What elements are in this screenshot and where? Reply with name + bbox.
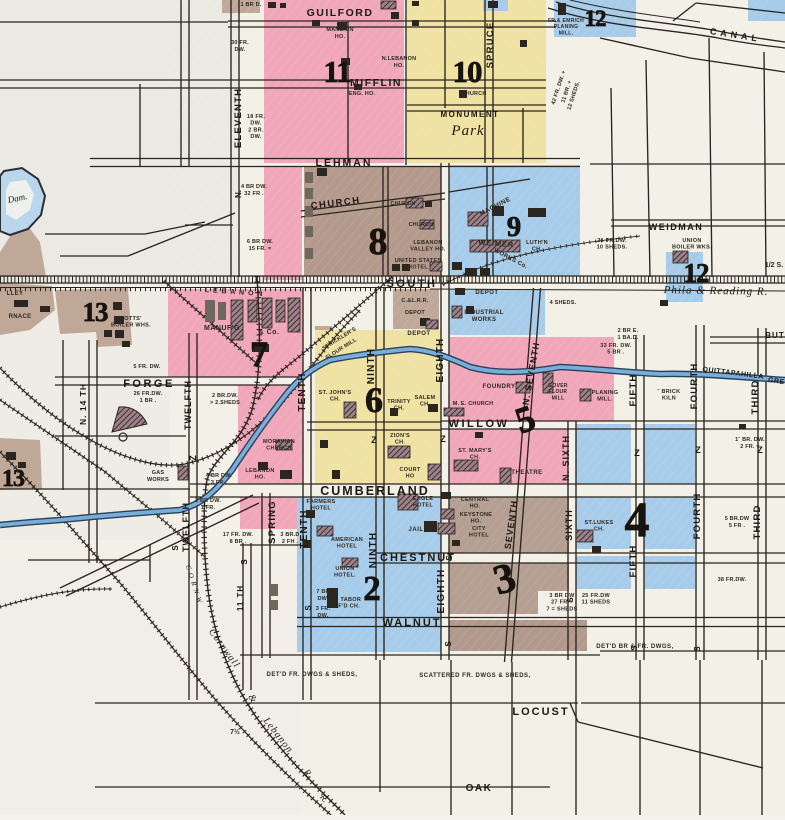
svg-text:ZION'S: ZION'S — [390, 433, 410, 439]
svg-text:C.&L.R.R.: C.&L.R.R. — [401, 298, 428, 304]
svg-text:HO.: HO. — [255, 475, 266, 481]
svg-text:18 FR.: 18 FR. — [247, 114, 265, 120]
svg-text:Z: Z — [188, 455, 198, 461]
svg-text:NINTH: NINTH — [366, 348, 377, 385]
svg-text:N.: N. — [234, 190, 243, 198]
svg-text:LEBANON: LEBANON — [413, 240, 442, 246]
svg-text:Z: Z — [371, 435, 377, 445]
svg-text:FLOUR: FLOUR — [549, 389, 568, 395]
svg-text:2 FH .: 2 FH . — [282, 539, 298, 545]
svg-text:2 BR DW.: 2 BR DW. — [195, 498, 221, 504]
svg-text:HO: HO — [406, 474, 415, 480]
svg-text:PLANING: PLANING — [554, 24, 579, 30]
svg-text:1 FR.: 1 FR. — [201, 505, 216, 511]
svg-text:CH.: CH. — [532, 247, 543, 253]
svg-text:1˝ BR. DW.: 1˝ BR. DW. — [735, 437, 765, 443]
svg-text:38 FR.DW.: 38 FR.DW. — [718, 577, 747, 583]
svg-text:TWELFTH: TWELFTH — [181, 502, 191, 552]
svg-text:9: 9 — [507, 211, 522, 243]
svg-text:6 BR DW.: 6 BR DW. — [247, 239, 273, 245]
svg-text:LEBANON: LEBANON — [245, 468, 274, 474]
svg-text:SOUTH: SOUTH — [387, 278, 438, 290]
svg-text:NINTH: NINTH — [368, 532, 379, 569]
svg-text:FR.& EMRICH: FR.& EMRICH — [548, 18, 584, 24]
svg-text:DEPOT: DEPOT — [407, 331, 430, 337]
svg-text:REF'D CH.: REF'D CH. — [330, 604, 360, 610]
svg-text:CH.: CH. — [394, 406, 405, 412]
svg-text:HOTEL.: HOTEL. — [334, 573, 356, 579]
svg-text:17 FR. DW.: 17 FR. DW. — [223, 532, 254, 538]
svg-text:HOTEL: HOTEL — [413, 503, 433, 509]
svg-text:LUTH'N: LUTH'N — [526, 240, 548, 246]
svg-text:5 BR.DW: 5 BR.DW — [725, 516, 750, 522]
svg-text:12: 12 — [684, 258, 710, 288]
svg-text:15 FR. =: 15 FR. = — [249, 246, 272, 252]
svg-text:RNACE: RNACE — [9, 314, 32, 320]
svg-text:DW.: DW. — [250, 134, 261, 140]
svg-text:THIRD: THIRD — [750, 379, 761, 414]
svg-text:DW.: DW. — [250, 121, 261, 127]
svg-text:25 FR.DW: 25 FR.DW — [582, 593, 611, 599]
svg-text:N. SIXTH: N. SIXTH — [561, 435, 571, 481]
svg-text:Phila & Reading R.: Phila & Reading R. — [663, 284, 769, 298]
svg-text:12: 12 — [585, 6, 607, 31]
svg-text:GOVER: GOVER — [548, 383, 568, 389]
svg-text:11 TH: 11 TH — [236, 585, 245, 611]
svg-text:7: 7 — [250, 334, 268, 374]
svg-text:Park: Park — [450, 123, 484, 139]
svg-text:MONUMENT: MONUMENT — [440, 110, 499, 119]
svg-text:MANSION: MANSION — [326, 27, 353, 33]
svg-text:CH.: CH. — [470, 455, 481, 461]
svg-text:4 SHEDS.: 4 SHEDS. — [550, 300, 577, 306]
svg-text:THIRD: THIRD — [752, 504, 763, 539]
svg-text:2: 2 — [363, 569, 381, 608]
svg-text:UNION: UNION — [335, 566, 354, 572]
svg-text:HOTEL: HOTEL — [469, 533, 489, 539]
svg-text:DW.: DW. — [235, 47, 246, 53]
svg-text:3 FR.: 3 FR. — [316, 606, 331, 612]
svg-text:SIXTH: SIXTH — [564, 509, 574, 541]
svg-text:CHURCH: CHURCH — [408, 222, 433, 228]
svg-text:TRINITY: TRINITY — [387, 399, 411, 405]
svg-text:S: S — [444, 641, 453, 647]
svg-text:HO.: HO. — [470, 504, 481, 510]
svg-text:CHURCH: CHURCH — [390, 201, 415, 207]
svg-text:BOILER WKS.: BOILER WKS. — [672, 245, 712, 251]
svg-text:EAGLE: EAGLE — [413, 496, 433, 502]
svg-text:& Co.: & Co. — [259, 329, 280, 336]
svg-text:5 FR .: 5 FR . — [729, 523, 745, 529]
svg-text:> 2.SHEDS: > 2.SHEDS — [210, 400, 240, 406]
svg-text:13: 13 — [83, 297, 109, 327]
svg-text:SCATTERED FR. DWGS & SHEDS,: SCATTERED FR. DWGS & SHEDS, — [419, 673, 530, 679]
svg-text:5 FR. DW.: 5 FR. DW. — [133, 364, 160, 370]
svg-text:MILL: MILL — [552, 395, 565, 401]
svg-text:LOCUST: LOCUST — [512, 706, 569, 718]
svg-text:THEATRE: THEATRE — [511, 470, 542, 476]
svg-text:LLEY: LLEY — [7, 291, 24, 297]
svg-text:WORKS: WORKS — [472, 317, 497, 323]
svg-text:CHURCH: CHURCH — [266, 446, 292, 452]
svg-text:HOTEL: HOTEL — [408, 265, 428, 271]
svg-text:HOTEL: HOTEL — [337, 544, 357, 550]
svg-text:BOILER WHS.: BOILER WHS. — [111, 323, 151, 329]
svg-text:EIGHTH: EIGHTH — [435, 338, 446, 383]
svg-text:3 BR.D: 3 BR.D — [280, 532, 299, 538]
svg-text:HO.: HO. — [394, 63, 405, 69]
svg-text:CH.: CH. — [594, 527, 605, 533]
svg-text:FARMERS: FARMERS — [307, 499, 336, 505]
svg-text:11: 11 — [323, 54, 350, 89]
svg-text:DEPOT: DEPOT — [405, 310, 425, 316]
svg-text:ENG. HO.: ENG. HO. — [349, 91, 376, 97]
svg-text:MILL.: MILL. — [559, 30, 574, 36]
svg-text:ELEVENTH: ELEVENTH — [233, 88, 244, 148]
svg-text:JAIL: JAIL — [408, 527, 423, 533]
svg-text:TENTH: TENTH — [297, 372, 308, 411]
svg-text:4 BR DW.: 4 BR DW. — [206, 473, 232, 479]
svg-text:1 BR .: 1 BR . — [140, 398, 157, 404]
svg-text:8: 8 — [369, 221, 388, 263]
svg-text:26 FR.DW.: 26 FR.DW. — [134, 391, 163, 397]
svg-text:3 FR .: 3 FR . — [211, 480, 227, 486]
svg-text:7 = SHEDS: 7 = SHEDS — [547, 606, 578, 612]
svg-text:2 BR.: 2 BR. — [248, 127, 264, 133]
svg-text:1 BR D.: 1 BR D. — [241, 2, 262, 8]
svg-text:10: 10 — [453, 54, 483, 89]
svg-text:AMERICAN: AMERICAN — [331, 537, 363, 543]
svg-text:CHURCH: CHURCH — [461, 91, 486, 97]
svg-text:CITY: CITY — [472, 526, 486, 532]
svg-text:S: S — [693, 646, 702, 652]
svg-text:DEPOT: DEPOT — [475, 290, 498, 296]
svg-text:INDUSTRIAL: INDUSTRIAL — [464, 310, 503, 316]
svg-text:32 FR .: 32 FR . — [244, 191, 264, 197]
svg-text:N. 14 TH: N. 14 TH — [78, 383, 88, 425]
svg-text:SPRING: SPRING — [267, 500, 278, 544]
svg-text:Z: Z — [695, 445, 701, 455]
svg-text:30 FR.: 30 FR. — [231, 40, 249, 46]
svg-text:FIFTH: FIFTH — [628, 374, 639, 407]
svg-text:3 BR DW: 3 BR DW — [549, 593, 575, 599]
svg-text:MT. TABOR: MT. TABOR — [329, 597, 361, 603]
svg-text:KILN: KILN — [662, 396, 676, 402]
svg-text:FOUNDRY: FOUNDRY — [483, 384, 516, 390]
svg-text:LEHMAN: LEHMAN — [316, 157, 373, 169]
svg-text:33 FR. DW.: 33 FR. DW. — [600, 343, 632, 349]
svg-text:CH.: CH. — [420, 402, 431, 408]
svg-text:10 SHEDS.: 10 SHEDS. — [597, 245, 628, 251]
svg-text:4 BR DW.: 4 BR DW. — [241, 184, 267, 190]
svg-text:6: 6 — [365, 380, 383, 420]
svg-text:FIFTH: FIFTH — [628, 545, 639, 578]
svg-text:GAS: GAS — [152, 470, 165, 476]
svg-text:CH.: CH. — [330, 397, 341, 403]
svg-text:˝ BRICK: ˝ BRICK — [657, 389, 681, 395]
svg-text:WALNUT: WALNUT — [382, 617, 441, 629]
svg-text:13: 13 — [2, 466, 25, 492]
svg-text:BUT: BUT — [765, 331, 784, 340]
svg-text:FOURTH: FOURTH — [689, 363, 700, 410]
svg-text:HO.: HO. — [471, 519, 482, 525]
svg-text:7½: 7½ — [230, 728, 240, 736]
svg-text:11 SHEDS: 11 SHEDS — [582, 600, 611, 606]
svg-text:DET'D FR. DWGS & SHEDS,: DET'D FR. DWGS & SHEDS, — [267, 672, 358, 678]
svg-text:5 BR .: 5 BR . — [607, 350, 625, 356]
svg-text:2 FR. =: 2 FR. = — [740, 444, 760, 450]
svg-text:S: S — [171, 545, 180, 551]
svg-text:MORAVIAN: MORAVIAN — [263, 439, 295, 445]
svg-text:S: S — [240, 559, 249, 565]
svg-text:27 FR +: 27 FR + — [551, 600, 573, 606]
svg-text:FORGE: FORGE — [123, 378, 175, 390]
svg-text:KEYSTONE: KEYSTONE — [460, 512, 493, 518]
svg-text:4: 4 — [625, 491, 650, 547]
svg-text:SALEM: SALEM — [415, 395, 436, 401]
svg-text:2 BR.DW.: 2 BR.DW. — [212, 393, 238, 399]
svg-text:Z: Z — [440, 434, 446, 444]
svg-text:PLANING: PLANING — [592, 390, 619, 396]
svg-text:FOURTH: FOURTH — [692, 493, 703, 540]
svg-text:SPRUCE: SPRUCE — [485, 22, 496, 69]
svg-text:GUILFORD: GUILFORD — [307, 7, 374, 19]
svg-text:7 BR: 7 BR — [316, 589, 329, 595]
svg-text:2 BR E.: 2 BR E. — [618, 328, 639, 334]
svg-text:COURT: COURT — [399, 467, 420, 473]
svg-text:21 FR.DW.: 21 FR.DW. — [597, 238, 627, 244]
svg-text:WORKS: WORKS — [147, 477, 169, 483]
svg-text:CH.: CH. — [395, 440, 406, 446]
svg-text:8 BR .: 8 BR . — [230, 539, 247, 545]
svg-text:S: S — [445, 555, 454, 561]
svg-text:DW.: DW. — [318, 596, 329, 602]
svg-text:MIFFLIN: MIFFLIN — [350, 77, 402, 89]
svg-text:OAK: OAK — [466, 783, 493, 794]
svg-text:M. E. CHURCH: M. E. CHURCH — [453, 401, 494, 407]
svg-text:UNITED STATES: UNITED STATES — [395, 258, 442, 264]
svg-text:TENTH: TENTH — [299, 509, 310, 548]
svg-text:DET'D BR & FR. DWGS,: DET'D BR & FR. DWGS, — [596, 644, 673, 650]
svg-text:WEIDMAN: WEIDMAN — [649, 222, 704, 232]
svg-text:ST. JOHN'S: ST. JOHN'S — [319, 390, 352, 396]
svg-text:POTTS': POTTS' — [120, 316, 142, 322]
svg-text:DW.: DW. — [318, 613, 329, 619]
svg-text:WILLOW: WILLOW — [449, 418, 510, 430]
svg-text:ST. MARY'S: ST. MARY'S — [458, 448, 491, 454]
svg-text:1 BA.D.: 1 BA.D. — [618, 335, 639, 341]
svg-text:S: S — [304, 605, 313, 611]
svg-text:HOTEL: HOTEL — [311, 506, 331, 512]
svg-text:MANUF'G: MANUF'G — [204, 325, 240, 332]
svg-text:ST.LUKES: ST.LUKES — [585, 520, 614, 526]
svg-text:HO.: HO. — [335, 34, 346, 40]
svg-text:CENTRAL: CENTRAL — [461, 497, 490, 503]
svg-text:MILL.: MILL. — [597, 397, 613, 403]
svg-text:EIGHTH: EIGHTH — [436, 569, 447, 614]
svg-text:TWELFTH: TWELFTH — [183, 380, 193, 430]
svg-text:Z: Z — [634, 448, 640, 458]
svg-text:VALLEY HO.: VALLEY HO. — [410, 247, 446, 253]
svg-text:UNION: UNION — [682, 238, 701, 244]
svg-text:1/2 S.: 1/2 S. — [765, 262, 783, 269]
svg-text:N.LEBANON: N.LEBANON — [382, 56, 417, 62]
